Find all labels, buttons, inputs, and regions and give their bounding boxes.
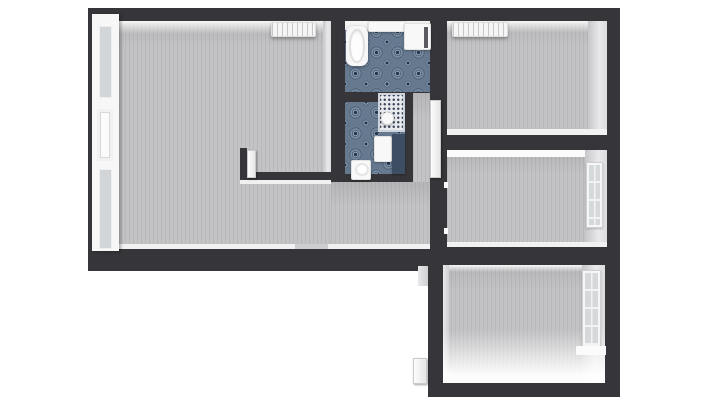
left-door-glass-lower xyxy=(99,169,112,249)
bathtub-basin xyxy=(349,29,365,63)
wc-shower-panel xyxy=(392,134,405,174)
toilet-bowl xyxy=(355,163,369,176)
topright-radiator xyxy=(452,22,508,37)
floor-plan-canvas xyxy=(0,0,711,400)
lower-window xyxy=(582,270,601,348)
hall-south-floor xyxy=(331,182,430,247)
toilet xyxy=(351,160,371,180)
left-door-recess-panel xyxy=(97,109,113,161)
living-door-threshold xyxy=(295,244,328,249)
topright-bottom-skirting xyxy=(447,129,607,135)
midright-bottom-skirting xyxy=(447,242,607,247)
hall-south-skirting xyxy=(331,244,430,249)
washing-machine xyxy=(404,23,431,50)
midright-window xyxy=(586,162,603,228)
left-french-doors xyxy=(92,14,119,251)
lower-window-glass xyxy=(585,273,598,345)
lower-outer-wall-face xyxy=(418,266,428,286)
lower-outside-door xyxy=(413,358,427,384)
hallway-open-door xyxy=(430,100,441,178)
top-right-room-floor xyxy=(447,21,607,135)
midright-door-jamb-b xyxy=(444,228,448,234)
kitchen-wall-top-face xyxy=(240,180,331,184)
living-room-floor xyxy=(101,21,331,247)
bathtub xyxy=(346,26,368,66)
living-radiator xyxy=(271,22,316,37)
wc-sink xyxy=(374,136,392,162)
topright-right-wall-face xyxy=(588,21,607,135)
midcolumn-left-wall-face xyxy=(323,21,331,172)
mid-right-room-floor xyxy=(447,150,607,247)
lower-floor-light-glow xyxy=(443,330,605,383)
kitchen-open-door xyxy=(247,150,256,178)
kitchen-wall-stub xyxy=(240,148,247,180)
midright-window-glass xyxy=(589,165,600,225)
lower-top-wall-face xyxy=(443,265,605,272)
pedestal-sink xyxy=(381,112,394,125)
lower-window-sill xyxy=(576,346,606,355)
bathroom-counter xyxy=(368,21,406,32)
washing-machine-slot xyxy=(424,27,428,48)
midright-door-jamb-a xyxy=(444,182,448,188)
hall-corridor-floor xyxy=(413,93,430,182)
midright-top-wall-face xyxy=(447,150,607,157)
left-door-glass-upper xyxy=(99,26,112,98)
